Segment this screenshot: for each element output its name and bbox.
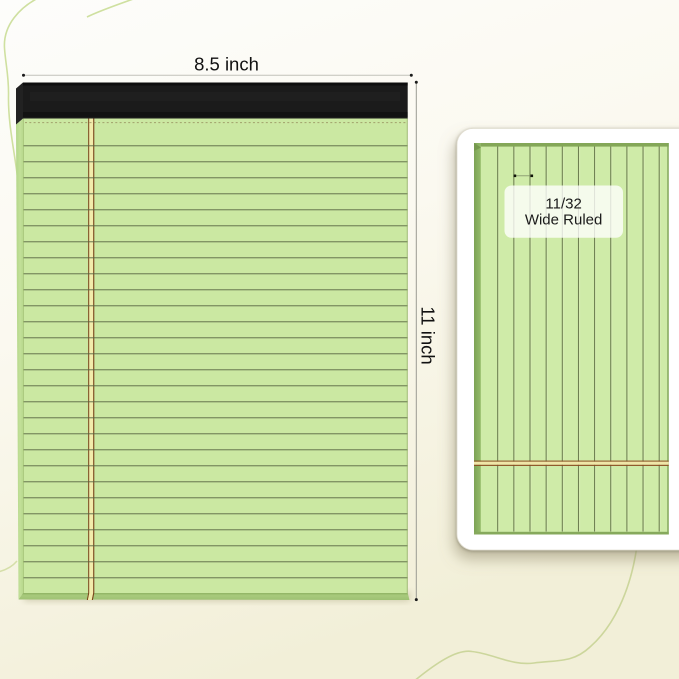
svg-text:8.5 inch: 8.5 inch — [194, 54, 259, 75]
svg-text:11 inch: 11 inch — [418, 306, 439, 364]
svg-text:Wide Ruled: Wide Ruled — [525, 212, 603, 229]
svg-text:11/32: 11/32 — [545, 195, 581, 212]
